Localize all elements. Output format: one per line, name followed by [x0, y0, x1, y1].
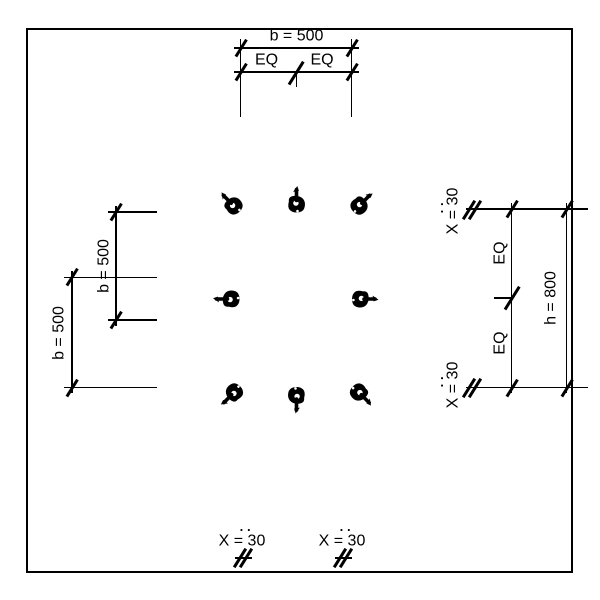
rebar-top-right	[347, 187, 378, 218]
rebar-middle-left	[213, 291, 240, 308]
drawing-canvas: b = 500 EQ EQ b = 500 b = 500 EQ EQ h = …	[0, 0, 600, 600]
rebar-bottom-right	[347, 380, 378, 411]
rebar-middle-right	[352, 291, 379, 308]
rebar-bottom-left	[215, 380, 246, 411]
rebar-layer	[0, 0, 600, 600]
rebar-top-middle	[288, 186, 305, 213]
rebar-top-left	[215, 187, 246, 218]
rebar-bottom-middle	[288, 387, 305, 414]
